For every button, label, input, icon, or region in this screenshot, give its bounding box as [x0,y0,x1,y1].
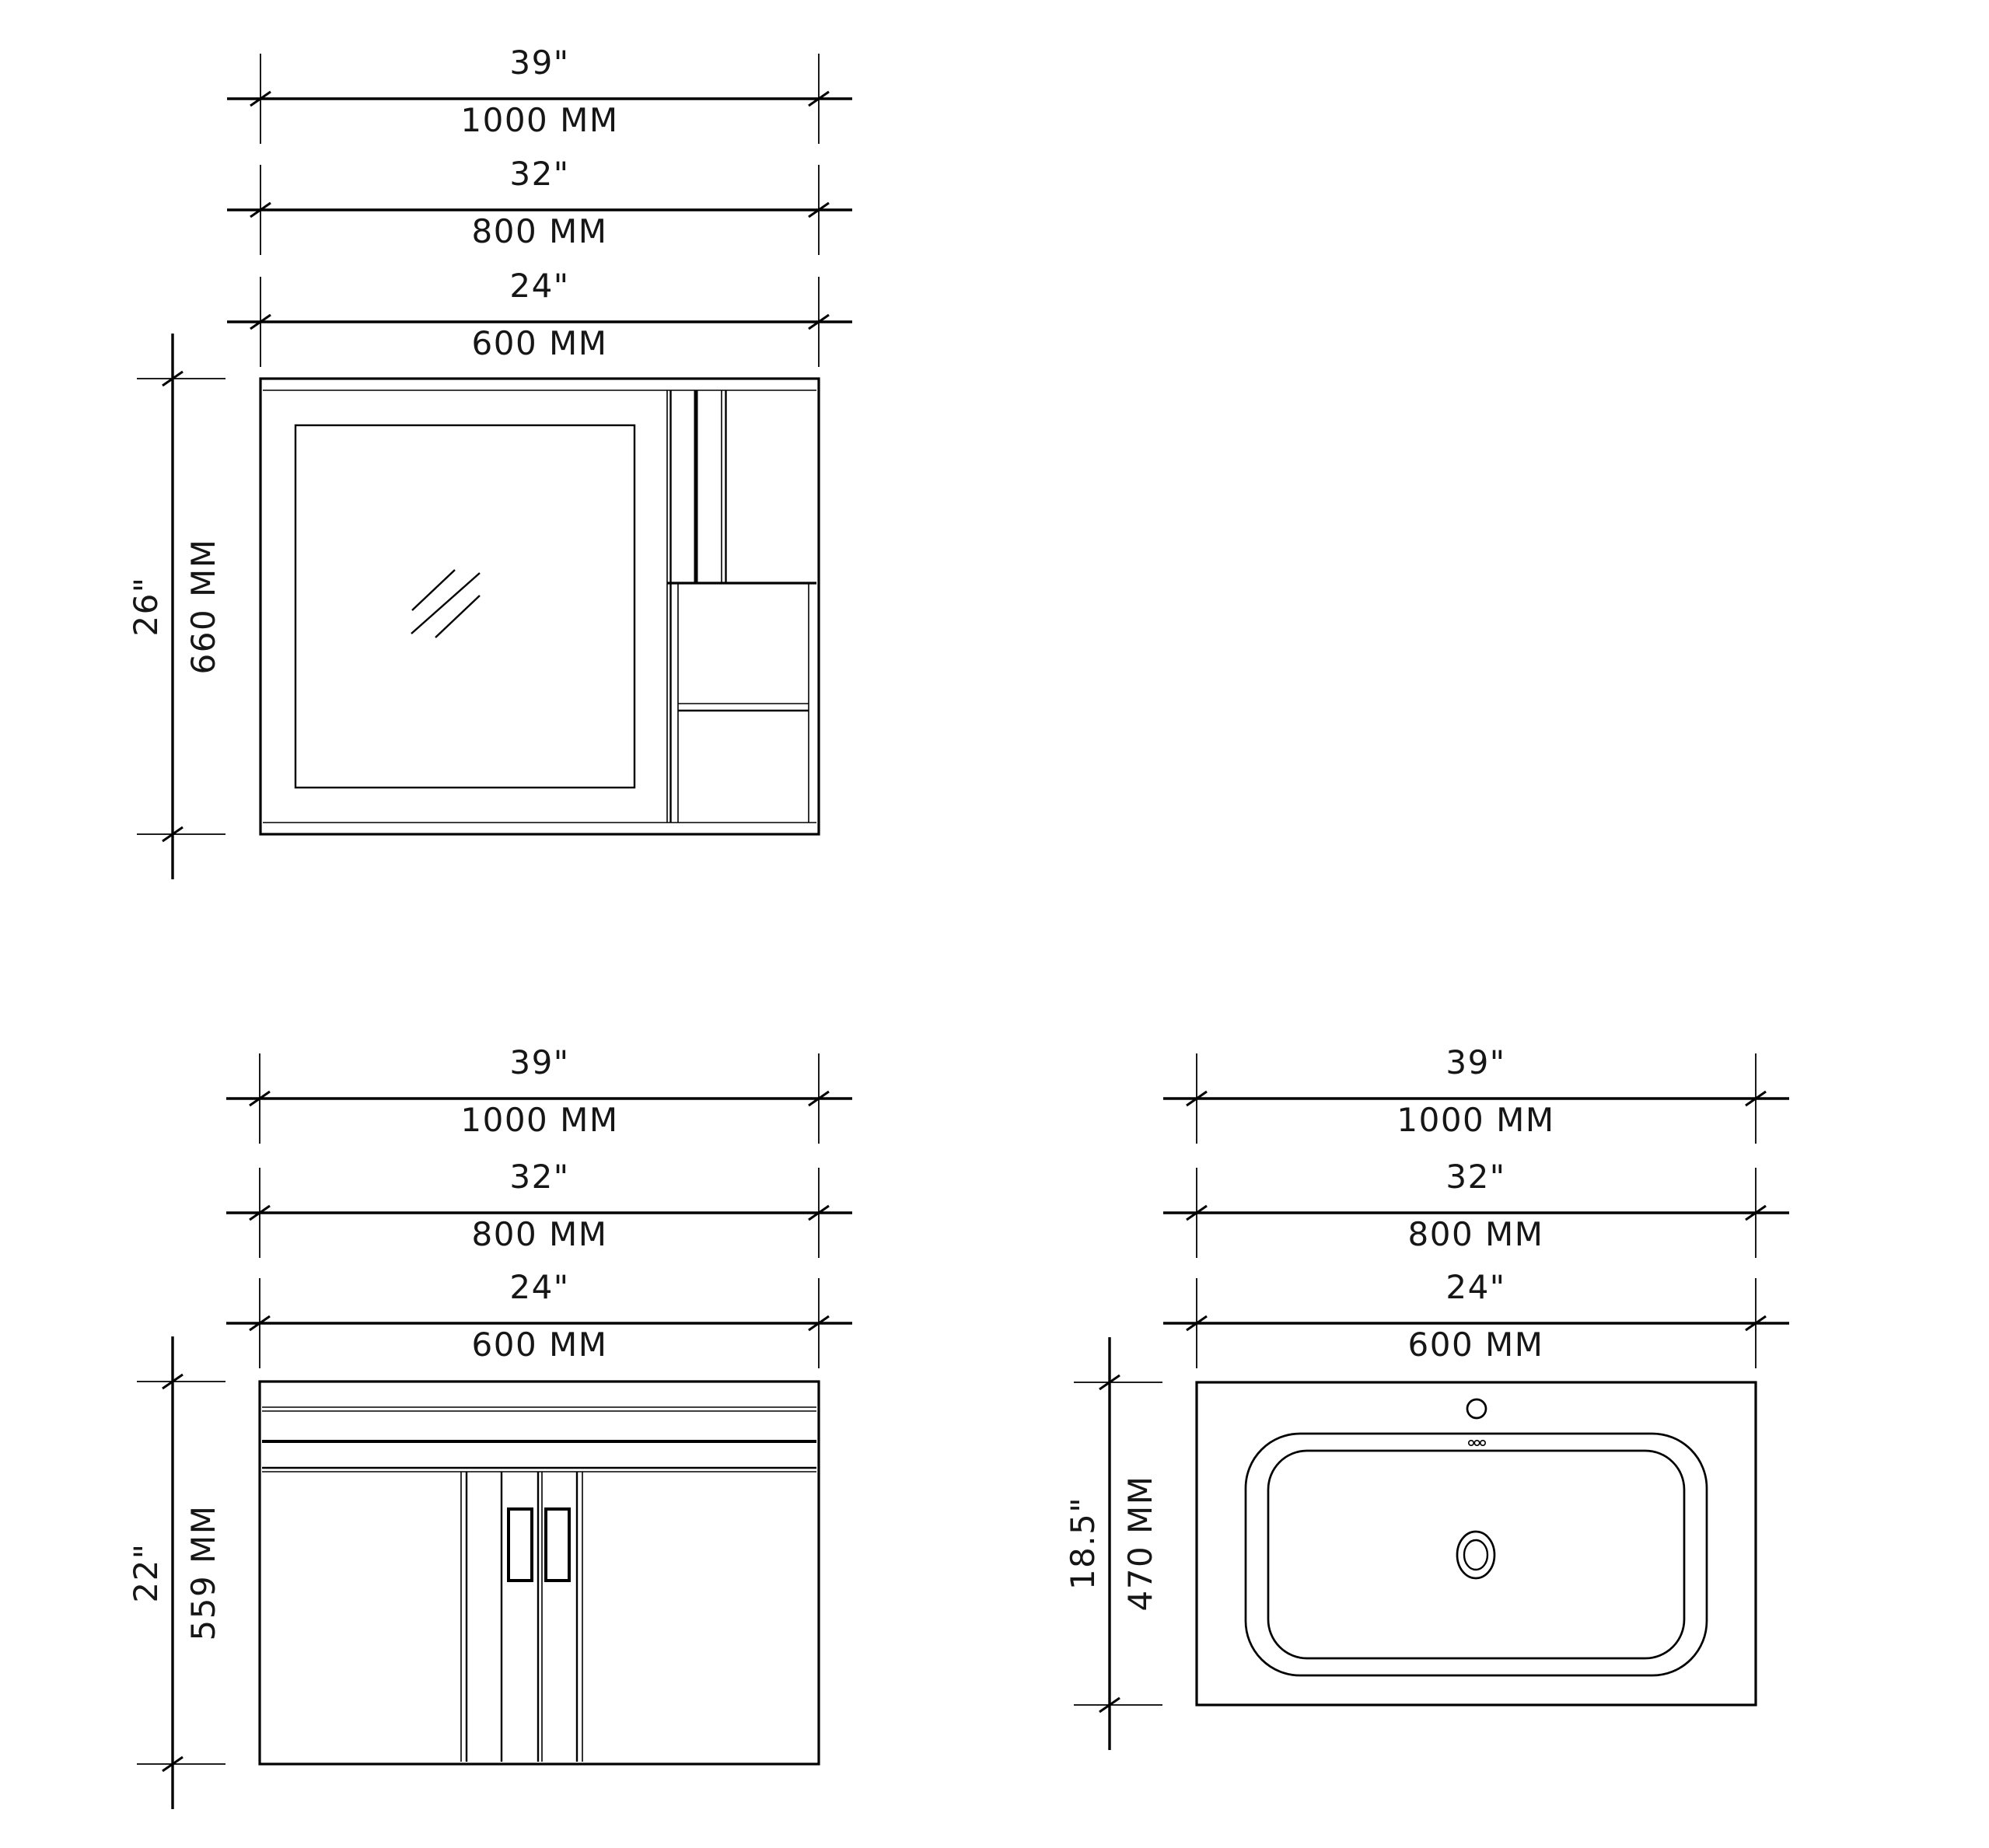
vanity-outline [260,1382,819,1764]
dim-width-24in: 24" 600 MM [226,1268,852,1368]
mirror-height-dimension: 26" 660 MM [127,334,225,879]
dim-label-inches: 32" [509,155,569,193]
vanity-spec-drawing: 39" 1000 MM 32" 800 MM 24" 600 MM [0,0,1989,1848]
dim-label-mm: 1000 MM [460,1101,618,1139]
cabinet-outline [260,379,819,834]
dim-label-mm: 800 MM [472,212,608,250]
dim-width-32in: 32" 800 MM [226,1158,852,1258]
dim-label-mm: 1000 MM [460,101,618,139]
vanity-view: 39" 1000 MM 32" 800 MM 24" 600 MM [127,1043,852,1809]
mirror-cabinet-view: 39" 1000 MM 32" 800 MM 24" 600 MM [127,44,852,879]
sink-width-dimensions: 39" 1000 MM 32" 800 MM 24" 600 MM [1163,1043,1789,1368]
dim-label-inches: 26" [127,576,165,636]
door-handle-left [509,1509,532,1581]
dim-label-inches: 24" [1445,1268,1505,1306]
dim-label-inches: 18.5" [1064,1497,1102,1590]
dim-width-39in: 39" 1000 MM [1163,1043,1789,1144]
vanity-height-dimension: 22" 559 MM [127,1336,225,1809]
dim-width-39in: 39" 1000 MM [227,44,852,144]
dim-label-mm: 559 MM [184,1505,222,1641]
dim-label-inches: 32" [509,1158,569,1196]
dim-label-mm: 600 MM [472,324,608,362]
dim-label-inches: 22" [127,1542,165,1602]
sink-top-view: 39" 1000 MM 32" 800 MM 24" 600 MM [1064,1043,1789,1750]
dim-label-inches: 24" [509,1268,569,1306]
dim-width-24in: 24" 600 MM [1163,1268,1789,1368]
dim-width-32in: 32" 800 MM [1163,1158,1789,1258]
dim-width-24in: 24" 600 MM [227,267,852,367]
dim-label-inches: 39" [1445,1043,1505,1081]
vanity-width-dimensions: 39" 1000 MM 32" 800 MM 24" 600 MM [226,1043,852,1368]
dim-label-inches: 32" [1445,1158,1505,1196]
vanity-cabinet-drawing [260,1382,819,1764]
dim-width-39in: 39" 1000 MM [226,1043,852,1144]
dim-width-32in: 32" 800 MM [227,155,852,255]
sink-depth-dimension: 18.5" 470 MM [1064,1337,1162,1750]
dim-label-mm: 660 MM [184,539,222,675]
dim-label-inches: 24" [509,267,569,305]
door-handle-right [546,1509,569,1581]
mirror-width-dimensions: 39" 1000 MM 32" 800 MM 24" 600 MM [227,44,852,367]
dim-label-mm: 600 MM [472,1326,608,1364]
dim-label-inches: 39" [509,1043,569,1081]
dim-label-mm: 470 MM [1121,1476,1159,1612]
spec-sheet: 39" 1000 MM 32" 800 MM 24" 600 MM [0,0,1989,1848]
dim-label-mm: 800 MM [1408,1215,1544,1253]
dim-label-mm: 800 MM [472,1215,608,1253]
mirror-cabinet-drawing [260,379,819,834]
dim-label-inches: 39" [509,44,569,82]
countertop-outline [1197,1382,1756,1705]
dim-label-mm: 1000 MM [1396,1101,1554,1139]
dim-label-mm: 600 MM [1408,1326,1544,1364]
sink-drawing [1197,1382,1756,1705]
